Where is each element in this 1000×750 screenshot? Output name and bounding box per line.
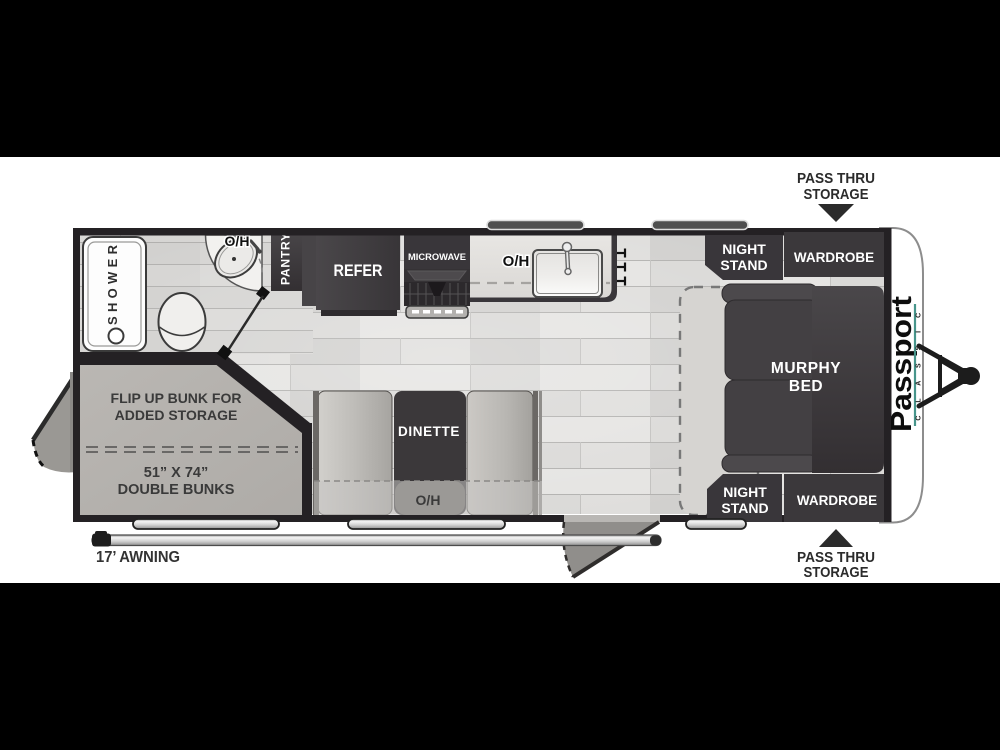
svg-text:MICROWAVE: MICROWAVE (408, 252, 466, 263)
svg-text:BED: BED (789, 378, 823, 395)
svg-text:STORAGE: STORAGE (804, 186, 869, 203)
svg-text:STAND: STAND (721, 500, 768, 516)
svg-text:Passport: Passport (886, 296, 918, 432)
svg-text:STORAGE: STORAGE (804, 564, 869, 581)
svg-text:PASS THRU: PASS THRU (797, 170, 875, 187)
svg-text:O/H: O/H (416, 492, 441, 508)
svg-text:STAND: STAND (720, 257, 767, 273)
svg-text:DINETTE: DINETTE (398, 424, 460, 439)
svg-text:17’ AWNING: 17’ AWNING (96, 549, 180, 566)
svg-text:WARDROBE: WARDROBE (794, 250, 874, 265)
svg-text:O/H: O/H (503, 253, 530, 270)
svg-text:REFER: REFER (334, 261, 383, 280)
svg-text:FLIP UP BUNK FOR: FLIP UP BUNK FOR (111, 390, 242, 406)
svg-text:DOUBLE BUNKS: DOUBLE BUNKS (118, 482, 235, 498)
svg-text:ADDED STORAGE: ADDED STORAGE (115, 407, 238, 423)
svg-text:WARDROBE: WARDROBE (797, 493, 877, 508)
svg-text:51” X 74”: 51” X 74” (144, 465, 209, 481)
svg-text:PANTRY: PANTRY (279, 233, 293, 285)
svg-text:NIGHT: NIGHT (723, 484, 767, 500)
svg-text:NIGHT: NIGHT (722, 241, 766, 257)
svg-text:MURPHY: MURPHY (771, 360, 841, 377)
